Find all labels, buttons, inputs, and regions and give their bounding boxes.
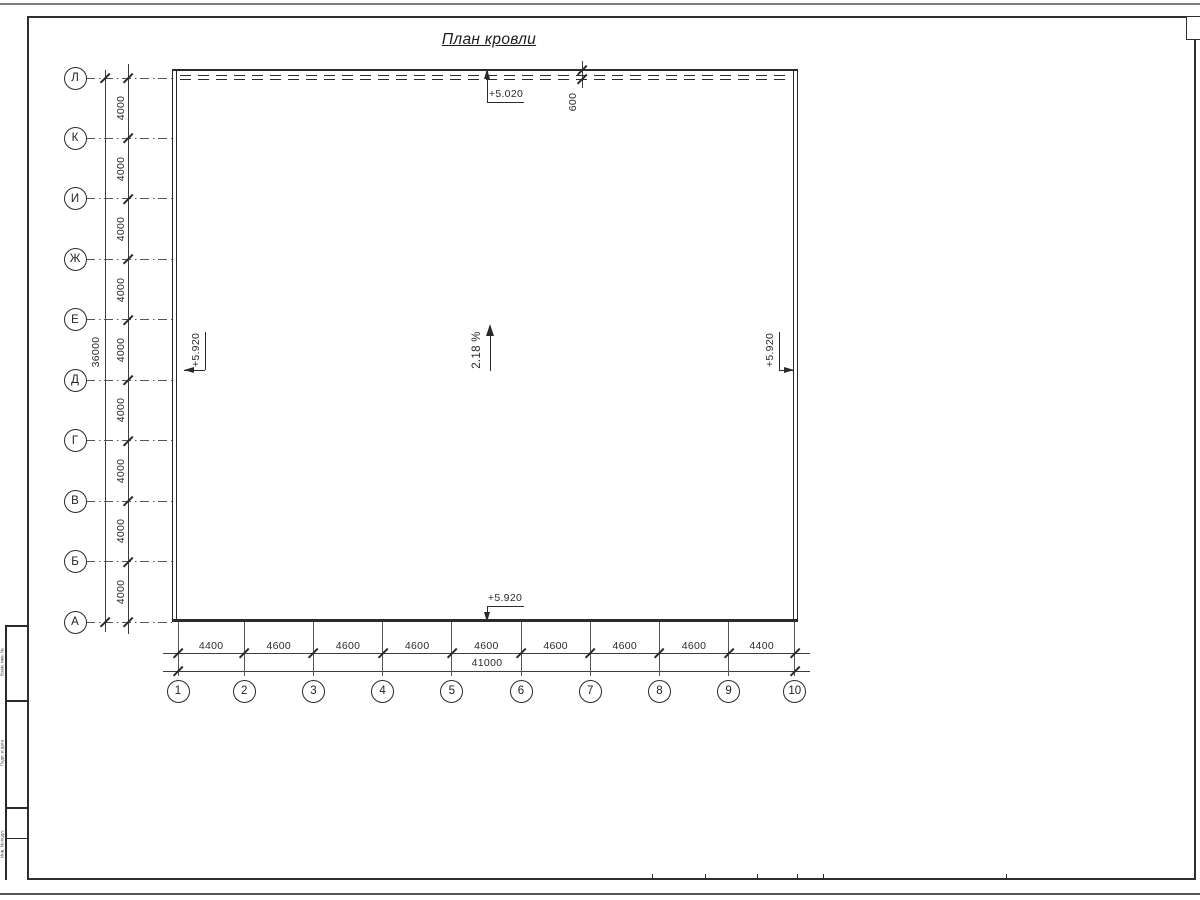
- slope-arrow-line: [490, 333, 491, 371]
- elevation-label-right: +5.920: [764, 333, 776, 367]
- parapet-offset-dim-line: [582, 61, 583, 88]
- titleblock-column-stub: [797, 874, 798, 880]
- elevation-label-bottom: +5.920: [488, 592, 522, 604]
- col-axis-bubble-10: 10: [783, 680, 806, 703]
- row-axis-bubble-Л: Л: [64, 67, 87, 90]
- titleblock-column-stub: [705, 874, 706, 880]
- sheet-outer-bottom-edge: [0, 893, 1200, 895]
- col-axis-bubble-9: 9: [717, 680, 740, 703]
- col-axis-bubble-4: 4: [371, 680, 394, 703]
- row-span-dim-label: 4000: [115, 277, 127, 302]
- slope-arrow-up-icon: [486, 324, 494, 336]
- drawing-title: План кровли: [399, 31, 579, 49]
- row-axis-bubble-К: К: [64, 127, 87, 150]
- col-dim-line-inner: [163, 653, 810, 654]
- col-axis-extension-line: [659, 622, 660, 676]
- stamp-side-label: Инв. № подл.: [0, 830, 4, 858]
- col-axis-extension-line: [451, 622, 452, 676]
- col-axis-bubble-6: 6: [510, 680, 533, 703]
- stamp-column-line: [5, 625, 7, 880]
- elevation-leader: [487, 606, 524, 607]
- col-span-dim-label: 4600: [267, 640, 292, 652]
- col-span-dim-label: 4600: [682, 640, 707, 652]
- elevation-arrow-down-icon: [484, 612, 490, 622]
- stamp-divider: [5, 625, 28, 627]
- row-span-dim-label: 4000: [115, 519, 127, 544]
- row-axis-bubble-Ж: Ж: [64, 248, 87, 271]
- row-span-dim-label: 4000: [115, 96, 127, 121]
- col-axis-bubble-7: 7: [579, 680, 602, 703]
- row-axis-bubble-А: А: [64, 611, 87, 634]
- col-axis-extension-line: [521, 622, 522, 676]
- elevation-leader: [487, 102, 524, 103]
- elevation-leader: [205, 332, 206, 370]
- parapet-offset-label: 600: [567, 93, 579, 111]
- roof-right-edge-inner: [793, 69, 794, 622]
- roof-right-edge: [797, 69, 798, 622]
- row-dim-line-outer: [105, 70, 106, 632]
- stamp-divider: [5, 807, 28, 809]
- row-span-dim-label: 4000: [115, 156, 127, 181]
- elevation-leader: [779, 370, 794, 371]
- format-corner-box: [1186, 16, 1200, 40]
- col-axis-extension-line: [382, 622, 383, 676]
- col-total-dim-label: 41000: [472, 657, 503, 669]
- row-axis-bubble-Е: Е: [64, 308, 87, 331]
- col-dim-line-outer: [163, 671, 810, 672]
- col-span-dim-label: 4600: [405, 640, 430, 652]
- col-axis-extension-line: [313, 622, 314, 676]
- col-axis-extension-line: [728, 622, 729, 676]
- elevation-leader: [184, 370, 205, 371]
- col-span-dim-label: 4600: [336, 640, 361, 652]
- roof-left-edge: [172, 69, 173, 622]
- roof-left-edge-inner: [176, 69, 177, 622]
- row-span-dim-label: 4000: [115, 459, 127, 484]
- col-span-dim-label: 4600: [474, 640, 499, 652]
- row-total-dim-label: 36000: [90, 337, 102, 368]
- row-span-dim-label: 4000: [115, 338, 127, 363]
- row-axis-bubble-Б: Б: [64, 550, 87, 573]
- drawing-sheet: Взам. инв. № Подп. и дата Инв. № подл. П…: [0, 0, 1200, 900]
- col-axis-extension-line: [590, 622, 591, 676]
- elevation-label-left: +5.920: [190, 333, 202, 367]
- titleblock-column-stub: [1006, 874, 1007, 880]
- stamp-side-label: Взам. инв. №: [0, 648, 4, 676]
- titleblock-column-stub: [757, 874, 758, 880]
- col-span-dim-label: 4400: [199, 640, 224, 652]
- stamp-side-label: Подп. и дата: [0, 740, 4, 767]
- slope-label: 2.18 %: [471, 331, 483, 369]
- col-axis-bubble-2: 2: [233, 680, 256, 703]
- row-axis-line: [86, 138, 172, 139]
- col-span-dim-label: 4600: [613, 640, 638, 652]
- drawing-frame: [27, 16, 1196, 880]
- row-dim-line-inner: [128, 64, 129, 634]
- row-span-dim-label: 4000: [115, 217, 127, 242]
- row-axis-bubble-И: И: [64, 187, 87, 210]
- elevation-leader: [779, 332, 780, 370]
- row-axis-bubble-Г: Г: [64, 429, 87, 452]
- row-axis-bubble-Д: Д: [64, 369, 87, 392]
- col-span-dim-label: 4600: [543, 640, 568, 652]
- col-axis-bubble-5: 5: [440, 680, 463, 703]
- elevation-leader: [487, 70, 488, 102]
- sheet-outer-top-edge: [0, 3, 1200, 5]
- row-span-dim-label: 4000: [115, 398, 127, 423]
- stamp-divider: [5, 838, 28, 839]
- col-span-dim-label: 4400: [749, 640, 774, 652]
- row-axis-bubble-В: В: [64, 490, 87, 513]
- col-axis-extension-line: [244, 622, 245, 676]
- titleblock-column-stub: [652, 874, 653, 880]
- elevation-label-top: +5.020: [489, 88, 523, 100]
- titleblock-column-stub: [823, 874, 824, 880]
- stamp-divider: [5, 700, 28, 702]
- col-axis-bubble-8: 8: [648, 680, 671, 703]
- col-axis-bubble-3: 3: [302, 680, 325, 703]
- col-axis-bubble-1: 1: [167, 680, 190, 703]
- row-span-dim-label: 4000: [115, 579, 127, 604]
